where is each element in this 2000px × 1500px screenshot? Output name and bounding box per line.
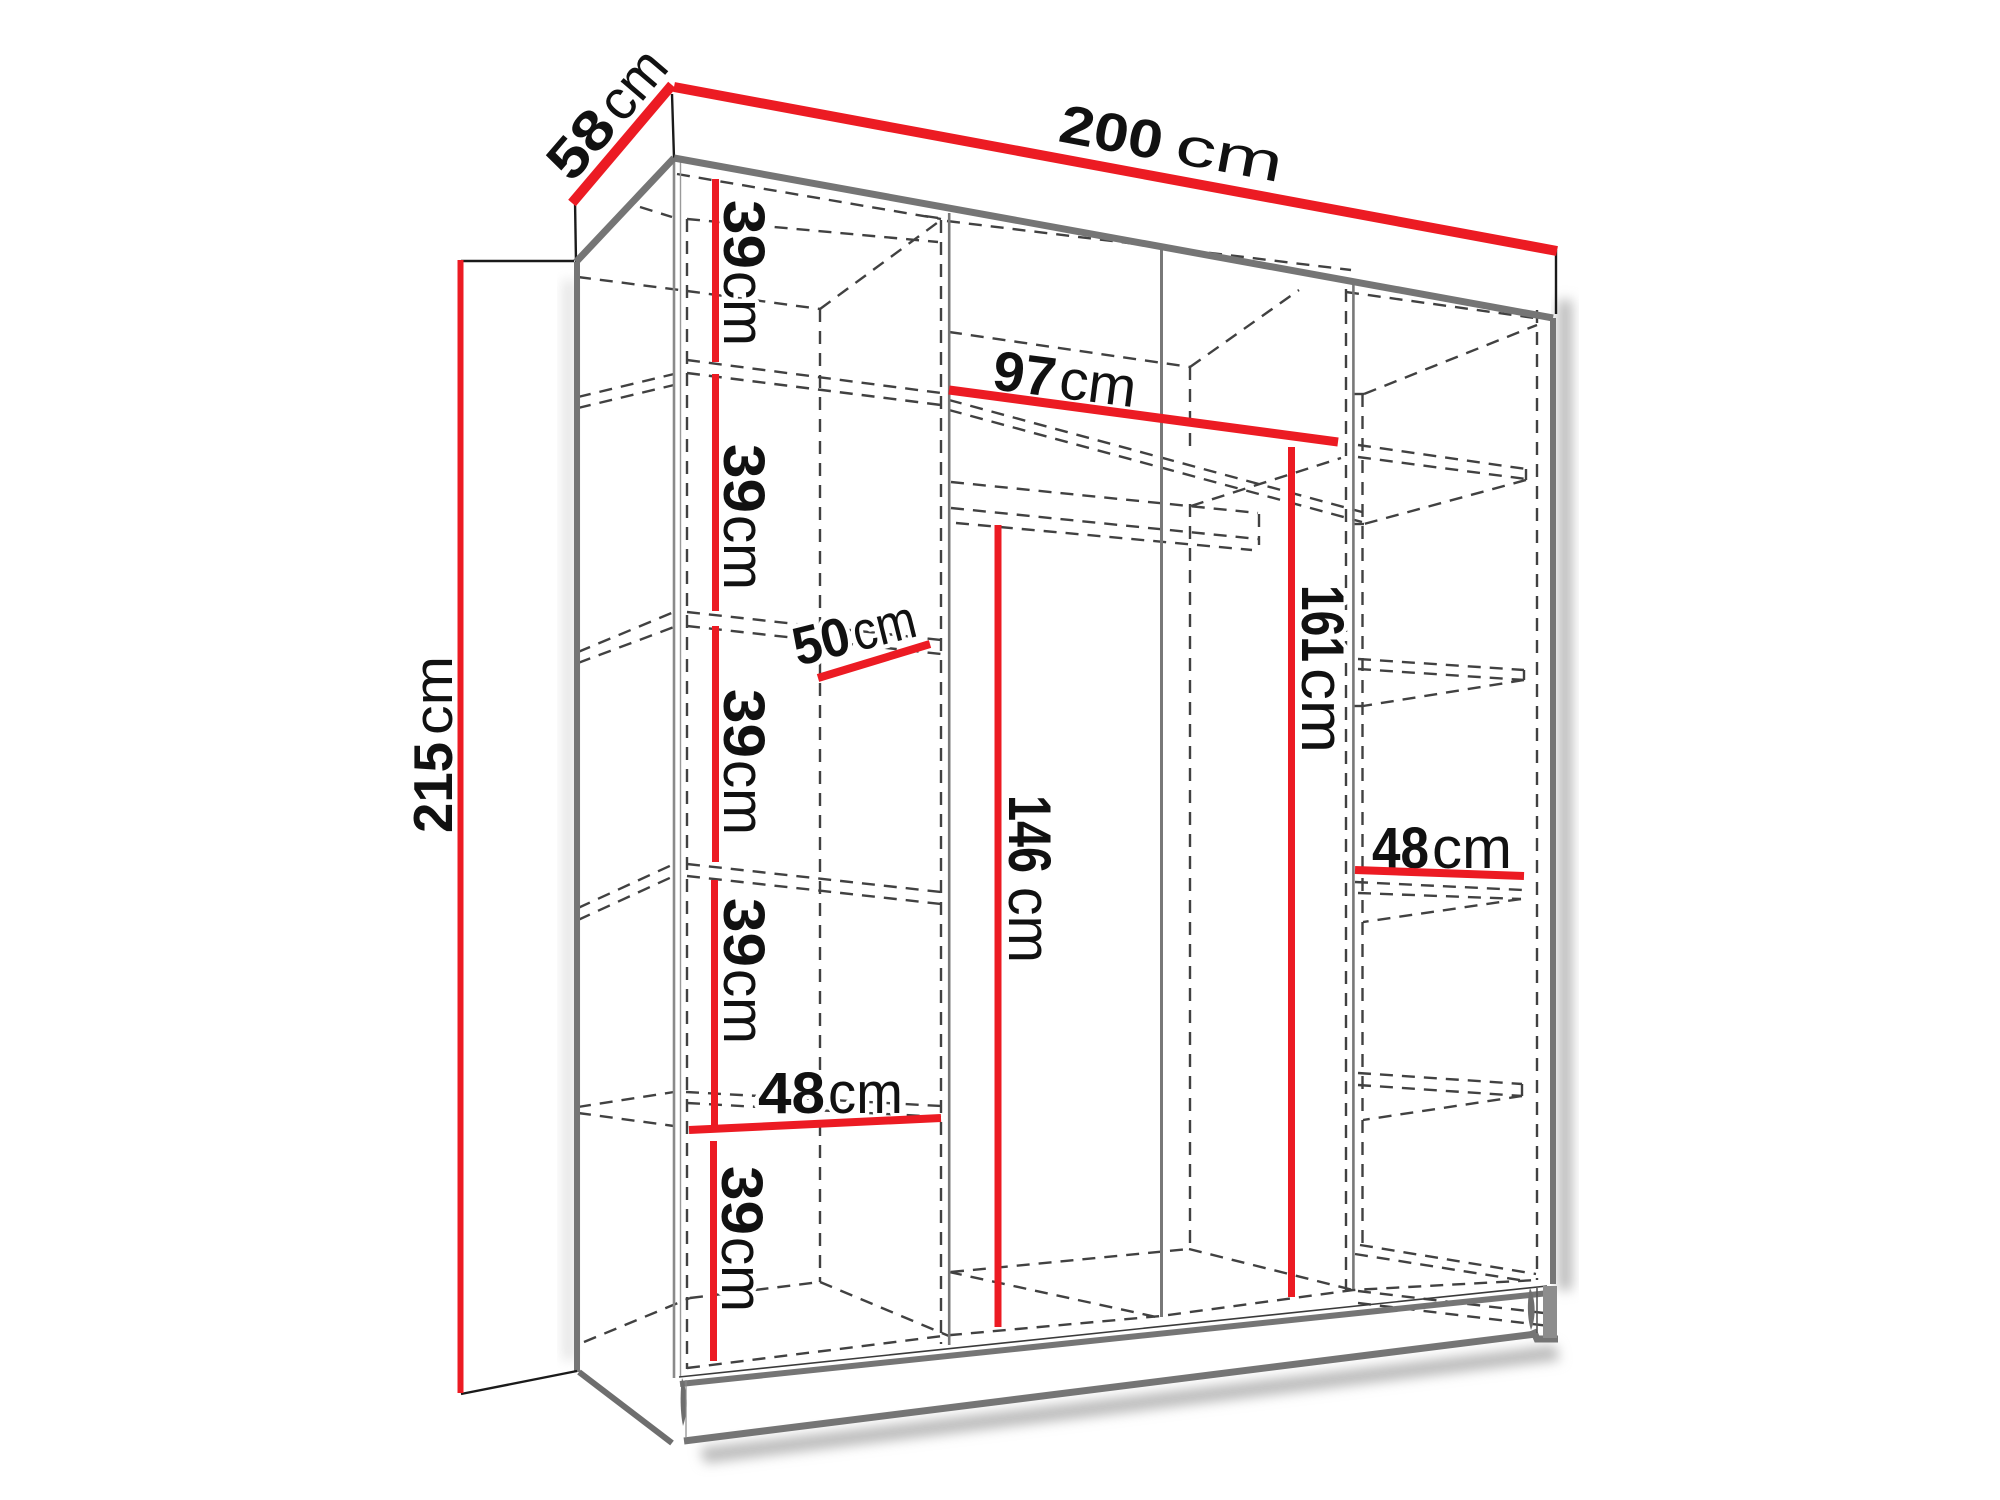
svg-text:215: 215 [402, 742, 464, 833]
svg-text:cm: cm [711, 760, 776, 835]
svg-text:cm: cm [711, 969, 776, 1044]
svg-text:39: 39 [709, 1166, 774, 1235]
svg-text:cm: cm [711, 271, 776, 346]
svg-text:39: 39 [711, 898, 776, 967]
svg-text:cm: cm [709, 1237, 774, 1312]
svg-text:cm: cm [402, 656, 464, 735]
svg-text:cm: cm [828, 1061, 903, 1126]
svg-text:48: 48 [758, 1061, 825, 1126]
svg-text:cm: cm [1289, 668, 1356, 753]
svg-text:39: 39 [711, 200, 776, 269]
svg-text:146: 146 [996, 795, 1063, 873]
svg-text:cm: cm [996, 887, 1063, 963]
svg-text:39: 39 [711, 689, 776, 758]
svg-text:161: 161 [1289, 585, 1356, 662]
svg-text:cm: cm [711, 515, 776, 590]
svg-text:39: 39 [711, 444, 776, 513]
